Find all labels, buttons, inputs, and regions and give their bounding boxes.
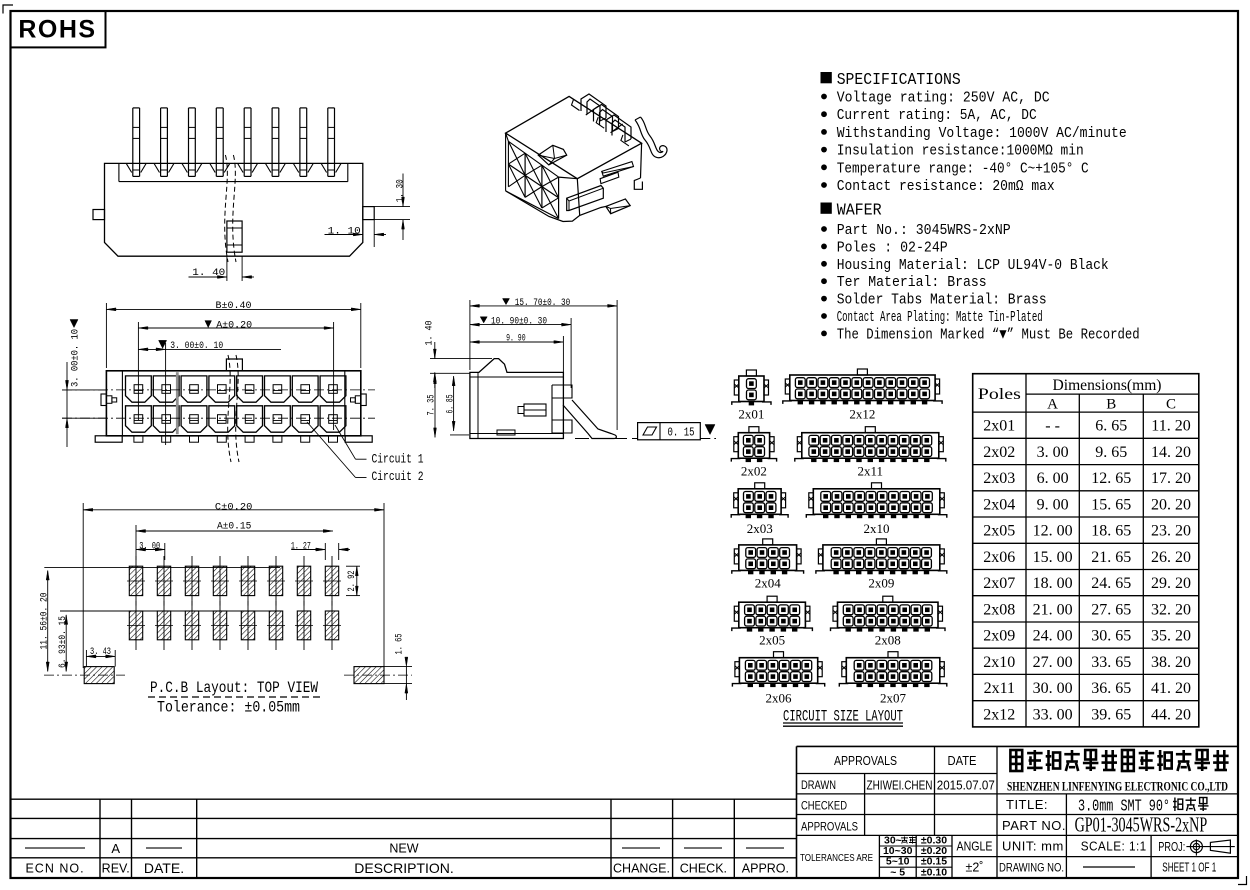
svg-text:Tolerance: ±0.05mm: Tolerance: ±0.05mm — [157, 699, 300, 717]
svg-text:Current rating: 5A, AC, DC: Current rating: 5A, AC, DC — [837, 107, 1037, 124]
svg-text:2x06: 2x06 — [766, 691, 793, 706]
svg-text:7. 35: 7. 35 — [427, 395, 438, 416]
svg-text:2x12: 2x12 — [983, 706, 1015, 723]
svg-text:3. 00±0. 10: 3. 00±0. 10 — [71, 329, 82, 387]
svg-text:ZHIWEI.CHEN: ZHIWEI.CHEN — [867, 778, 933, 793]
svg-text:6. 65: 6. 65 — [1095, 418, 1127, 435]
svg-text:9. 90: 9. 90 — [506, 334, 525, 345]
svg-text:2x12: 2x12 — [849, 407, 875, 422]
svg-text:DESCRIPTION.: DESCRIPTION. — [354, 860, 454, 876]
svg-text:2x11: 2x11 — [858, 464, 884, 479]
svg-text:41. 20: 41. 20 — [1151, 680, 1191, 697]
svg-text:1. 10: 1. 10 — [328, 227, 361, 238]
svg-text:23. 20: 23. 20 — [1151, 523, 1191, 540]
svg-text:2x08: 2x08 — [875, 633, 901, 648]
svg-text:3. 00±0. 10: 3. 00±0. 10 — [170, 341, 223, 352]
svg-text:A: A — [1047, 396, 1058, 412]
svg-text:2x05: 2x05 — [759, 633, 785, 648]
svg-text:APPRO.: APPRO. — [742, 862, 789, 876]
svg-text:21. 00: 21. 00 — [1033, 601, 1073, 618]
svg-text:CHECK.: CHECK. — [680, 862, 727, 876]
svg-text:±2˚: ±2˚ — [966, 861, 984, 875]
svg-text:20. 20: 20. 20 — [1151, 496, 1191, 513]
svg-text:- -: - - — [1045, 418, 1060, 435]
svg-text:2x09: 2x09 — [983, 628, 1015, 645]
svg-text:2x03: 2x03 — [983, 470, 1015, 487]
svg-text:32. 20: 32. 20 — [1151, 601, 1191, 618]
svg-text:11. 56±0. 20: 11. 56±0. 20 — [40, 593, 51, 650]
svg-text:Circuit 2: Circuit 2 — [372, 470, 424, 484]
svg-text:3. 00: 3. 00 — [1037, 444, 1069, 461]
svg-text:Voltage rating: 250V AC, DC: Voltage rating: 250V AC, DC — [837, 90, 1050, 107]
svg-text:2x02: 2x02 — [741, 464, 767, 479]
svg-text:SCALE: 1:1: SCALE: 1:1 — [1081, 839, 1147, 854]
svg-text:Part No.: 3045WRS-2xNP: Part No.: 3045WRS-2xNP — [837, 222, 1011, 239]
svg-text:35. 20: 35. 20 — [1151, 628, 1191, 645]
svg-text:30. 65: 30. 65 — [1091, 628, 1131, 645]
svg-text:Poles: Poles — [978, 386, 1021, 403]
svg-text:15. 65: 15. 65 — [1091, 496, 1131, 513]
svg-text:44. 20: 44. 20 — [1151, 706, 1191, 723]
svg-text:Temperature range: -40° C~+105: Temperature range: -40° C~+105° C — [837, 160, 1089, 177]
svg-text:REV.: REV. — [102, 862, 130, 876]
svg-text:2015.07.07: 2015.07.07 — [937, 778, 995, 793]
svg-text:SPECIFICATIONS: SPECIFICATIONS — [837, 71, 961, 90]
svg-text:10. 90±0. 30: 10. 90±0. 30 — [491, 317, 547, 328]
svg-text:TITLE:: TITLE: — [1006, 797, 1048, 812]
svg-text:DRAWN: DRAWN — [801, 778, 836, 792]
svg-text:SHENZHEN LINFENYING ELECTRONIC: SHENZHEN LINFENYING ELECTRONIC CO.,LTD — [1007, 779, 1228, 794]
svg-text:Withstanding Voltage: 1000V AC: Withstanding Voltage: 1000V AC/minute — [837, 125, 1127, 142]
svg-text:±0.10: ±0.10 — [921, 866, 947, 878]
svg-text:B±0.40: B±0.40 — [216, 301, 252, 312]
svg-text:15. 00: 15. 00 — [1033, 549, 1073, 566]
svg-text:TOLERANCES ARE: TOLERANCES ARE — [800, 852, 873, 864]
svg-text:SHEET 1 OF 1: SHEET 1 OF 1 — [1162, 861, 1216, 875]
svg-text:1. 27: 1. 27 — [291, 542, 311, 553]
svg-text:2x05: 2x05 — [983, 523, 1015, 540]
svg-text:2x10: 2x10 — [983, 654, 1015, 671]
svg-text:11. 20: 11. 20 — [1151, 418, 1190, 435]
svg-text:PART NO.: PART NO. — [1002, 818, 1066, 833]
svg-text:27. 00: 27. 00 — [1033, 654, 1073, 671]
svg-text:33. 65: 33. 65 — [1091, 654, 1131, 671]
svg-text:2x02: 2x02 — [983, 444, 1015, 461]
svg-text:CHECKED: CHECKED — [801, 799, 847, 813]
svg-text:29. 20: 29. 20 — [1151, 575, 1191, 592]
svg-text:ANGLE: ANGLE — [957, 840, 993, 854]
svg-text:6. 00: 6. 00 — [1037, 470, 1069, 487]
svg-text:~ 5: ~ 5 — [890, 866, 905, 878]
svg-text:DATE: DATE — [948, 754, 977, 768]
svg-text:36. 65: 36. 65 — [1091, 680, 1131, 697]
svg-text:26. 20: 26. 20 — [1151, 549, 1191, 566]
svg-text:2x01: 2x01 — [738, 407, 764, 422]
svg-text:2x11: 2x11 — [984, 680, 1015, 697]
svg-text:WAFER: WAFER — [837, 202, 882, 221]
svg-text:NEW: NEW — [389, 842, 418, 856]
svg-text:30. 00: 30. 00 — [1033, 680, 1073, 697]
svg-text:21. 65: 21. 65 — [1091, 549, 1131, 566]
svg-text:DATE.: DATE. — [144, 860, 184, 876]
svg-text:The Dimension Marked “▼” Must: The Dimension Marked “▼” Must Be Recorde… — [837, 326, 1140, 343]
svg-text:Dimensions(mm): Dimensions(mm) — [1053, 377, 1162, 394]
svg-text:DRAWING NO.: DRAWING NO. — [999, 861, 1064, 875]
svg-text:B: B — [1106, 396, 1116, 412]
svg-text:UNIT: mm: UNIT: mm — [1002, 839, 1064, 854]
svg-text:Circuit 1: Circuit 1 — [372, 453, 424, 467]
svg-text:0. 15: 0. 15 — [668, 426, 695, 440]
svg-text:APPROVALS: APPROVALS — [801, 820, 858, 834]
svg-text:ROHS: ROHS — [18, 16, 96, 44]
svg-text:2x08: 2x08 — [983, 601, 1015, 618]
svg-text:14. 20: 14. 20 — [1151, 444, 1191, 461]
svg-text:17. 20: 17. 20 — [1151, 470, 1191, 487]
svg-text:1. 40: 1. 40 — [425, 321, 436, 346]
svg-text:38. 20: 38. 20 — [1151, 654, 1191, 671]
svg-text:C±0.20: C±0.20 — [215, 503, 253, 514]
svg-text:C: C — [1166, 396, 1176, 412]
svg-text:2x04: 2x04 — [983, 496, 1015, 513]
svg-text:6. 85: 6. 85 — [446, 395, 457, 414]
svg-text:ECN NO.: ECN NO. — [25, 862, 84, 876]
svg-text:Insulation resistance:1000MΩ m: Insulation resistance:1000MΩ min — [837, 143, 1084, 160]
svg-text:33. 00: 33. 00 — [1033, 706, 1073, 723]
svg-text:Poles : 02-24P: Poles : 02-24P — [837, 239, 948, 256]
svg-text:Solder Tabs Material: Brass: Solder Tabs Material: Brass — [837, 292, 1047, 309]
svg-text:PROJ:: PROJ: — [1158, 840, 1185, 854]
svg-text:2x07: 2x07 — [880, 691, 907, 706]
svg-text:2x09: 2x09 — [868, 576, 894, 591]
svg-text:27. 65: 27. 65 — [1091, 601, 1131, 618]
svg-text:Contact resistance: 20mΩ max: Contact resistance: 20mΩ max — [837, 178, 1055, 195]
svg-text:39. 65: 39. 65 — [1091, 706, 1131, 723]
svg-text:A±0.20: A±0.20 — [216, 321, 252, 332]
svg-text:2x01: 2x01 — [983, 418, 1015, 435]
svg-text:24. 00: 24. 00 — [1033, 628, 1073, 645]
svg-text:P.C.B Layout: TOP VIEW: P.C.B Layout: TOP VIEW — [150, 679, 318, 697]
svg-text:2x06: 2x06 — [983, 549, 1015, 566]
svg-text:CHANGE.: CHANGE. — [613, 862, 670, 876]
svg-text:2x10: 2x10 — [864, 521, 890, 536]
svg-text:GP01-3045WRS-2xNP: GP01-3045WRS-2xNP — [1075, 813, 1208, 837]
svg-text:APPROVALS: APPROVALS — [834, 754, 897, 768]
svg-text:2x03: 2x03 — [747, 521, 773, 536]
svg-text:2x04: 2x04 — [755, 576, 782, 591]
svg-text:Contact Area Plating: Matte Ti: Contact Area Plating: Matte Tin-Plated — [837, 309, 1043, 326]
svg-text:9. 65: 9. 65 — [1095, 444, 1127, 461]
svg-text:Ter Material: Brass: Ter Material: Brass — [837, 274, 987, 291]
svg-text:9. 00: 9. 00 — [1037, 496, 1069, 513]
svg-text:Housing Material: LCP UL94V-0: Housing Material: LCP UL94V-0 Black — [837, 257, 1109, 274]
svg-text:2x07: 2x07 — [983, 575, 1015, 592]
svg-text:12. 00: 12. 00 — [1033, 523, 1073, 540]
svg-text:1. 30: 1. 30 — [396, 179, 407, 202]
svg-text:24. 65: 24. 65 — [1091, 575, 1131, 592]
svg-text:15. 70±0. 30: 15. 70±0. 30 — [515, 298, 571, 309]
svg-text:A: A — [111, 841, 120, 856]
svg-text:18. 65: 18. 65 — [1091, 523, 1131, 540]
svg-text:1. 65: 1. 65 — [395, 634, 406, 655]
svg-text:12. 65: 12. 65 — [1091, 470, 1131, 487]
svg-text:18. 00: 18. 00 — [1033, 575, 1073, 592]
